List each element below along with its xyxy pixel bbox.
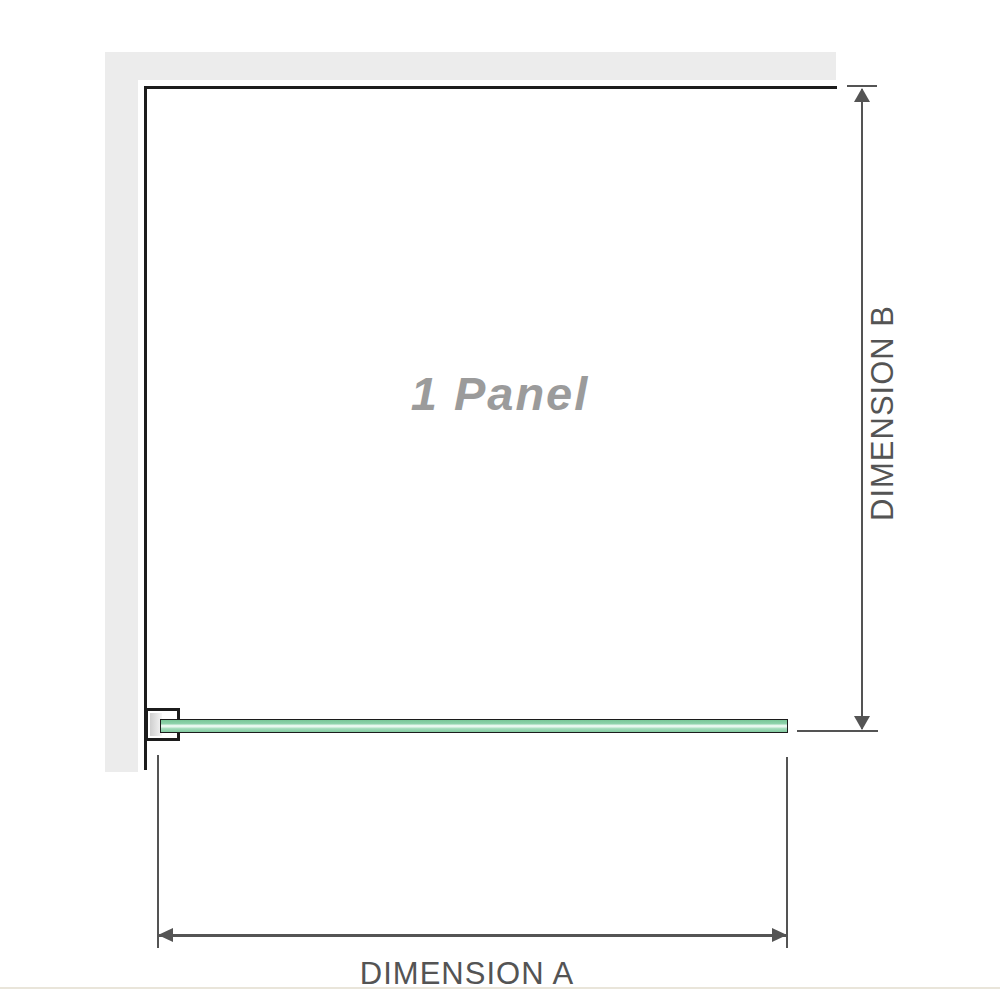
wall-top <box>105 52 836 80</box>
arrow-down-icon <box>854 716 870 730</box>
arrow-left-icon <box>158 928 173 942</box>
wall-left <box>105 52 138 772</box>
dimension-b-line <box>861 89 864 729</box>
dimension-b-label: DIMENSION B <box>865 293 899 533</box>
enclosure-left-edge <box>144 86 147 770</box>
dimension-a-line <box>159 934 786 937</box>
shower-panel-dimension-diagram: 1 Panel DIMENSION B DIMENSION A <box>0 0 1000 1000</box>
page-bottom-rule <box>0 987 1000 989</box>
dimension-a-left-extension <box>157 755 160 948</box>
enclosure-top-edge <box>144 86 837 89</box>
dimension-a-right-extension <box>786 757 789 948</box>
dimension-b-top-tick <box>847 85 877 88</box>
glass-panel <box>160 719 788 733</box>
arrow-right-icon <box>772 928 787 942</box>
panel-count-label: 1 Panel <box>300 366 700 426</box>
arrow-up-icon <box>854 88 870 102</box>
